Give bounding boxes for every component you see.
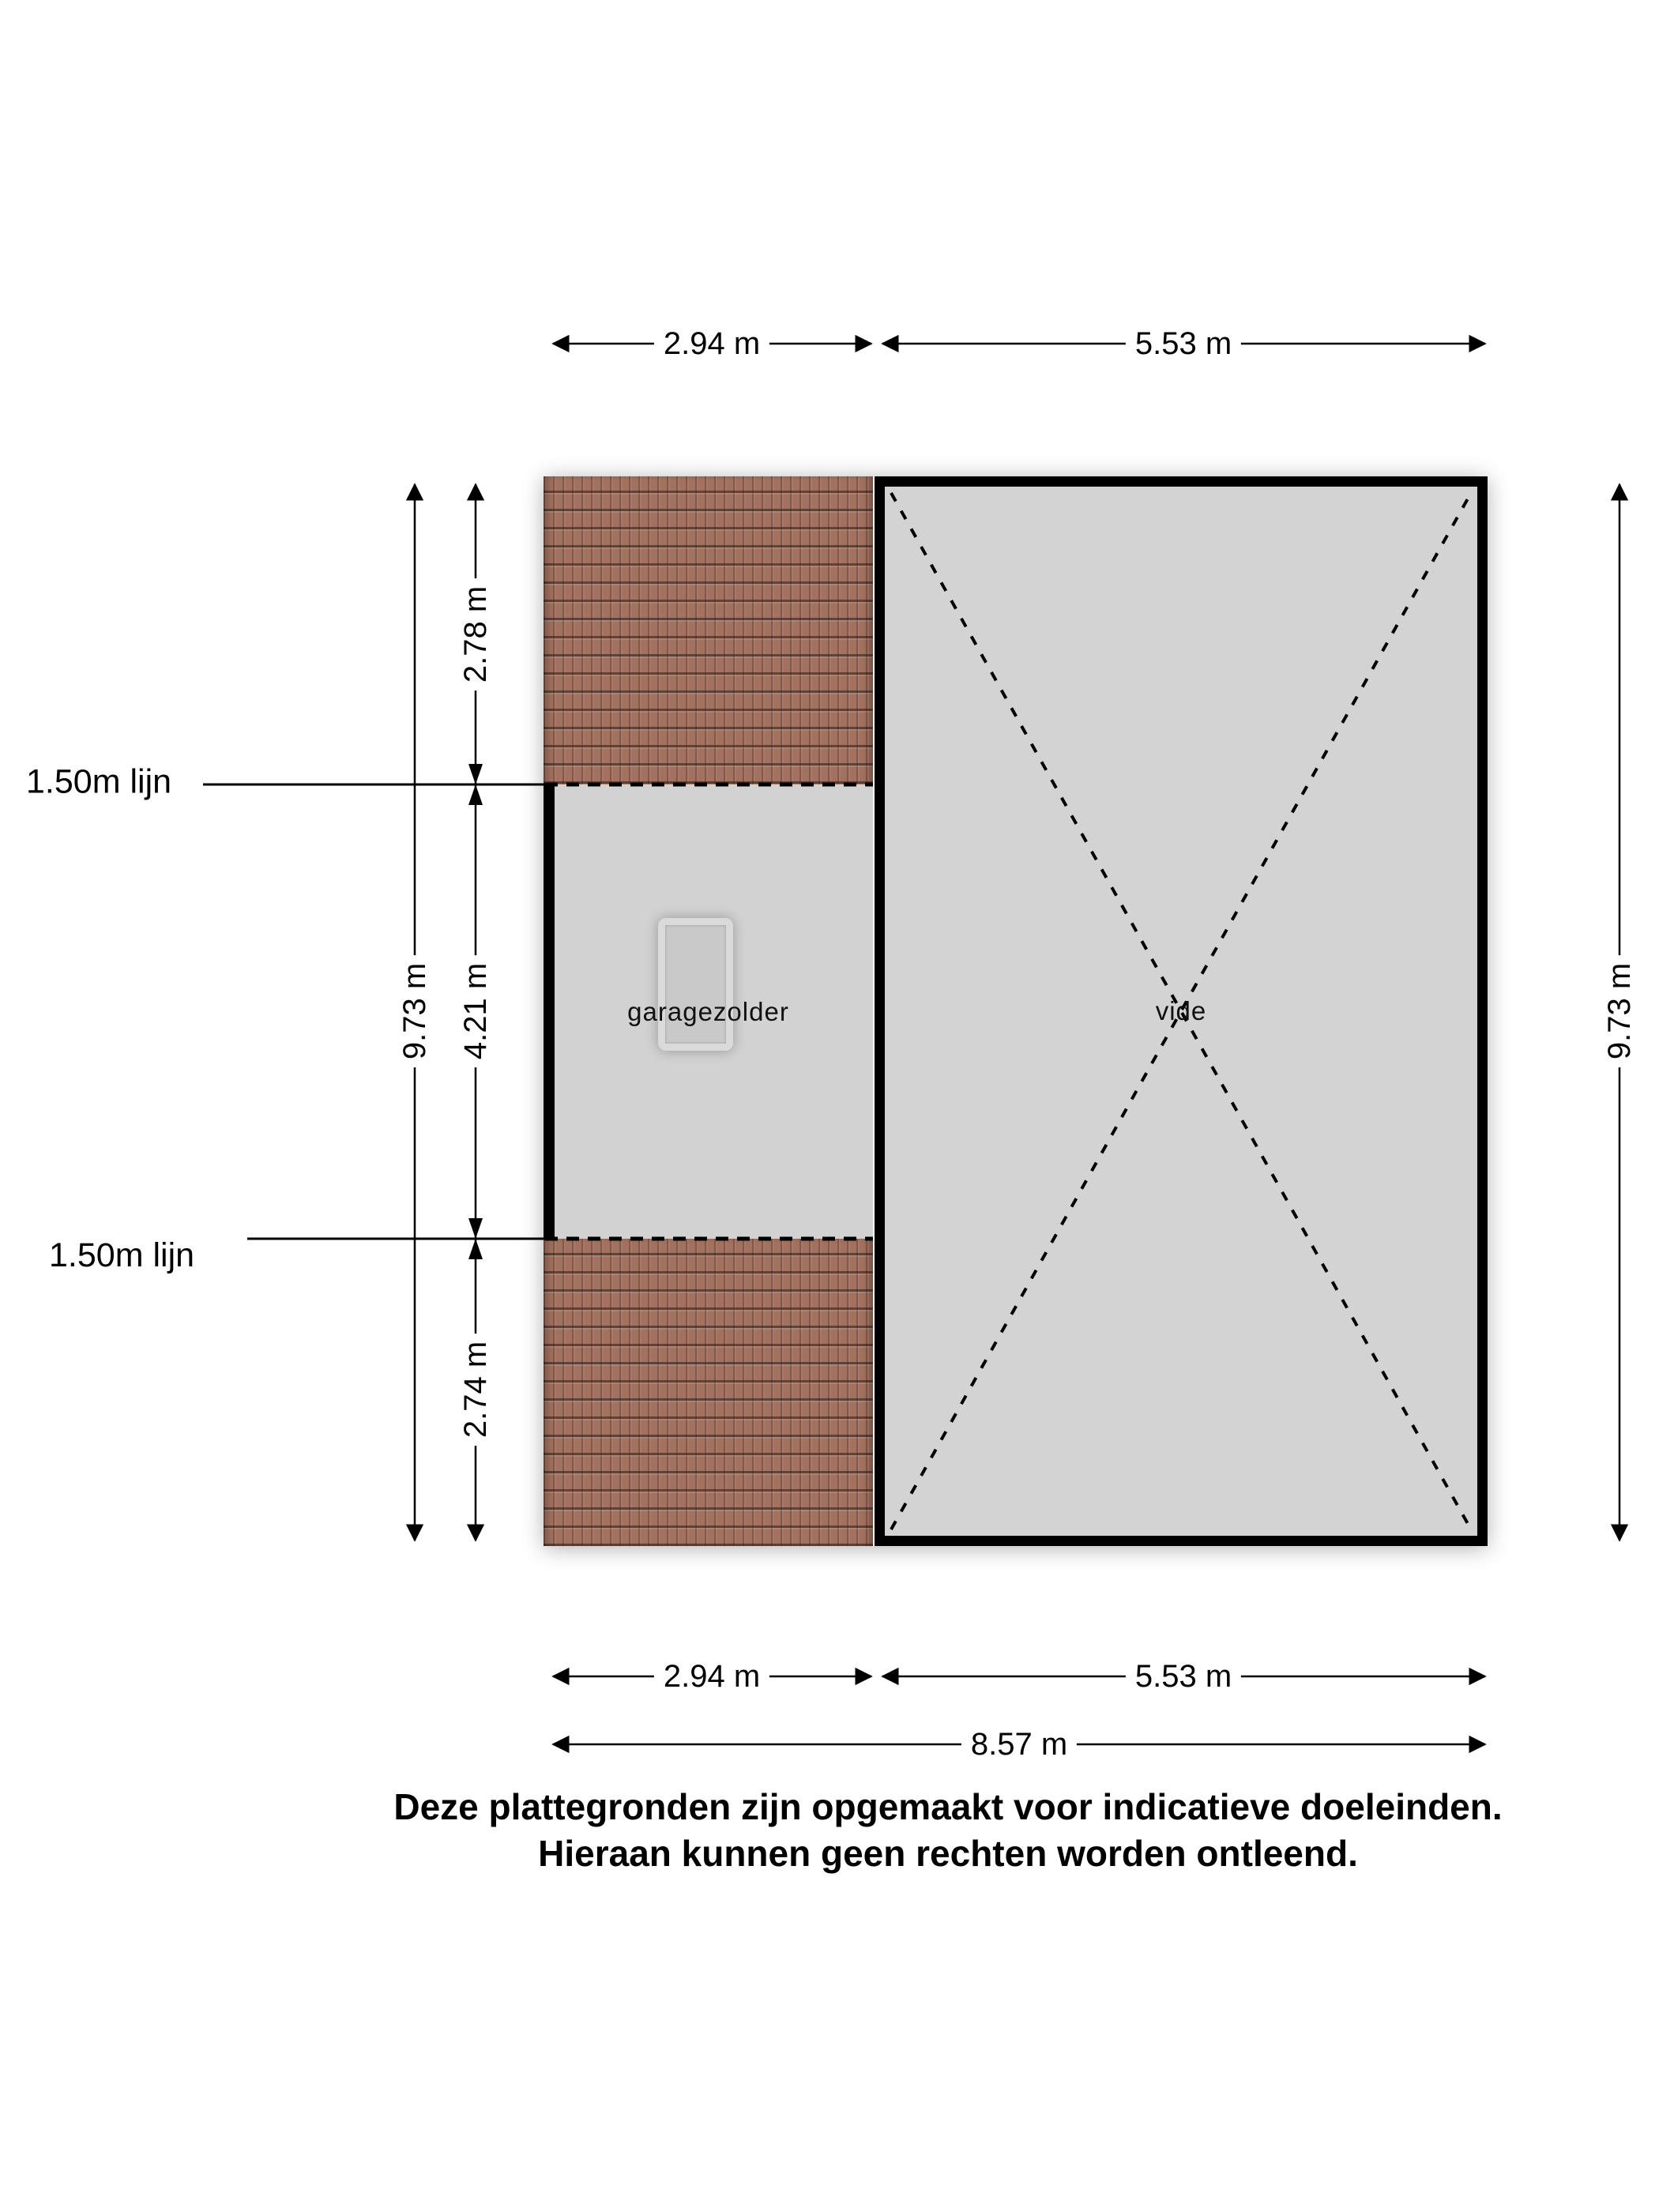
dim-label-bottom-294: 2.94 m bbox=[654, 1657, 769, 1695]
dim-label-left-total-973: 9.73 m bbox=[396, 955, 434, 1067]
dim-label-bottom-total-857: 8.57 m bbox=[961, 1725, 1077, 1763]
disclaimer-line-1: Deze plattegronden zijn opgemaakt voor i… bbox=[237, 1784, 1659, 1830]
dim-label-top-553: 5.53 m bbox=[1126, 325, 1241, 363]
skylight-window bbox=[658, 918, 733, 1051]
dim-label-left-421: 4.21 m bbox=[457, 955, 495, 1067]
height-line-label-bottom: 1.50m lijn bbox=[49, 1237, 194, 1274]
dim-label-left-278: 2.78 m bbox=[457, 578, 495, 690]
height-line-label-top: 1.50m lijn bbox=[26, 763, 171, 800]
roof-section-top bbox=[544, 476, 873, 784]
disclaimer-line-2: Hieraan kunnen geen rechten worden ontle… bbox=[237, 1830, 1659, 1877]
wall-left bbox=[544, 784, 555, 1239]
disclaimer: Deze plattegronden zijn opgemaakt voor i… bbox=[237, 1784, 1659, 1877]
dim-label-top-294: 2.94 m bbox=[654, 325, 769, 363]
floorplan-canvas: 2.94 m 5.53 m 2.78 m 4.21 m 2.74 m 9.73 … bbox=[0, 0, 1659, 2212]
roof-section-bottom bbox=[544, 1239, 873, 1546]
dim-label-right-total-973: 9.73 m bbox=[1601, 955, 1638, 1067]
dim-label-bottom-553: 5.53 m bbox=[1126, 1657, 1241, 1695]
dim-label-left-274: 2.74 m bbox=[457, 1334, 495, 1446]
room-vide bbox=[875, 476, 1488, 1546]
